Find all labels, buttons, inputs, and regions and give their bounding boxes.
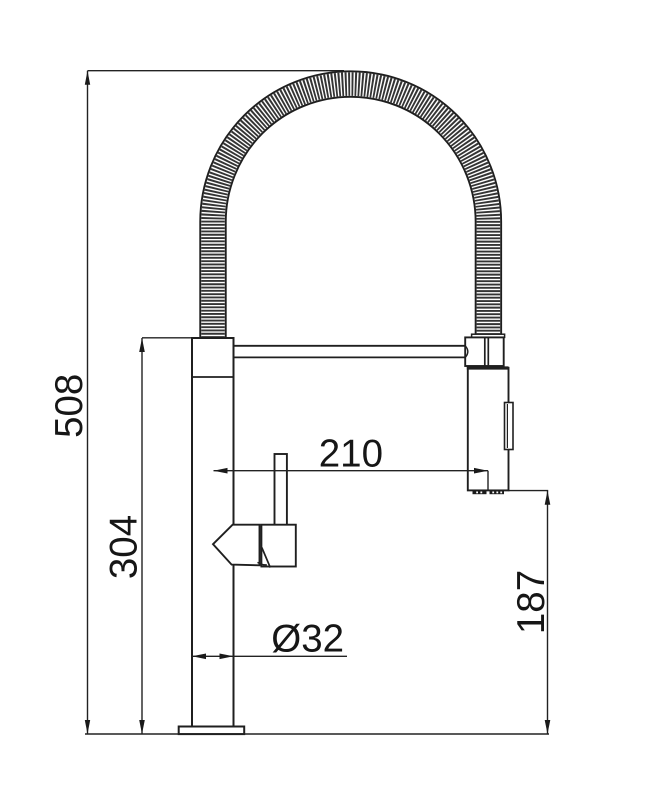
svg-text:187: 187	[510, 570, 553, 634]
svg-text:Ø32: Ø32	[271, 618, 344, 661]
svg-text:508: 508	[48, 374, 91, 438]
svg-text:304: 304	[102, 515, 145, 579]
svg-text:210: 210	[319, 432, 383, 475]
